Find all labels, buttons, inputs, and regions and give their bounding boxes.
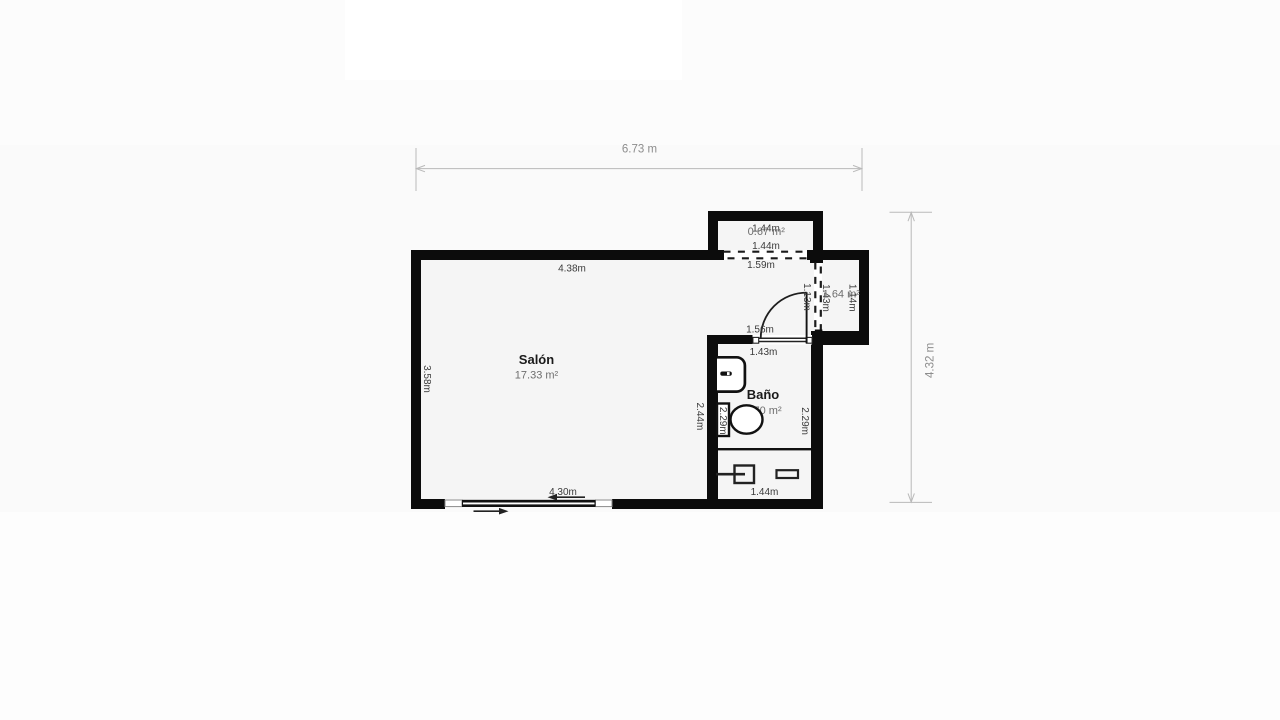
svg-text:0.67 m²: 0.67 m² <box>748 226 786 238</box>
svg-text:Baño: Baño <box>747 387 780 402</box>
svg-text:1.44m: 1.44m <box>752 241 780 252</box>
svg-text:Salón: Salón <box>519 352 554 367</box>
svg-text:1.59m: 1.59m <box>747 260 775 271</box>
svg-text:4.38m: 4.38m <box>558 264 586 275</box>
svg-text:2.29m: 2.29m <box>717 407 728 435</box>
svg-text:1.44m: 1.44m <box>751 487 779 498</box>
svg-text:2.29m: 2.29m <box>799 407 810 435</box>
svg-text:1.56m: 1.56m <box>746 324 774 335</box>
svg-text:3.58m: 3.58m <box>421 365 432 393</box>
svg-text:1.13m: 1.13m <box>801 283 812 311</box>
svg-text:4.32 m: 4.32 m <box>925 343 937 378</box>
svg-text:1.43m: 1.43m <box>750 347 778 358</box>
svg-text:6.73 m: 6.73 m <box>622 144 657 156</box>
svg-text:17.33 m²: 17.33 m² <box>515 369 559 381</box>
svg-text:1.14m: 1.14m <box>846 284 857 312</box>
svg-text:2.44m: 2.44m <box>694 403 705 431</box>
